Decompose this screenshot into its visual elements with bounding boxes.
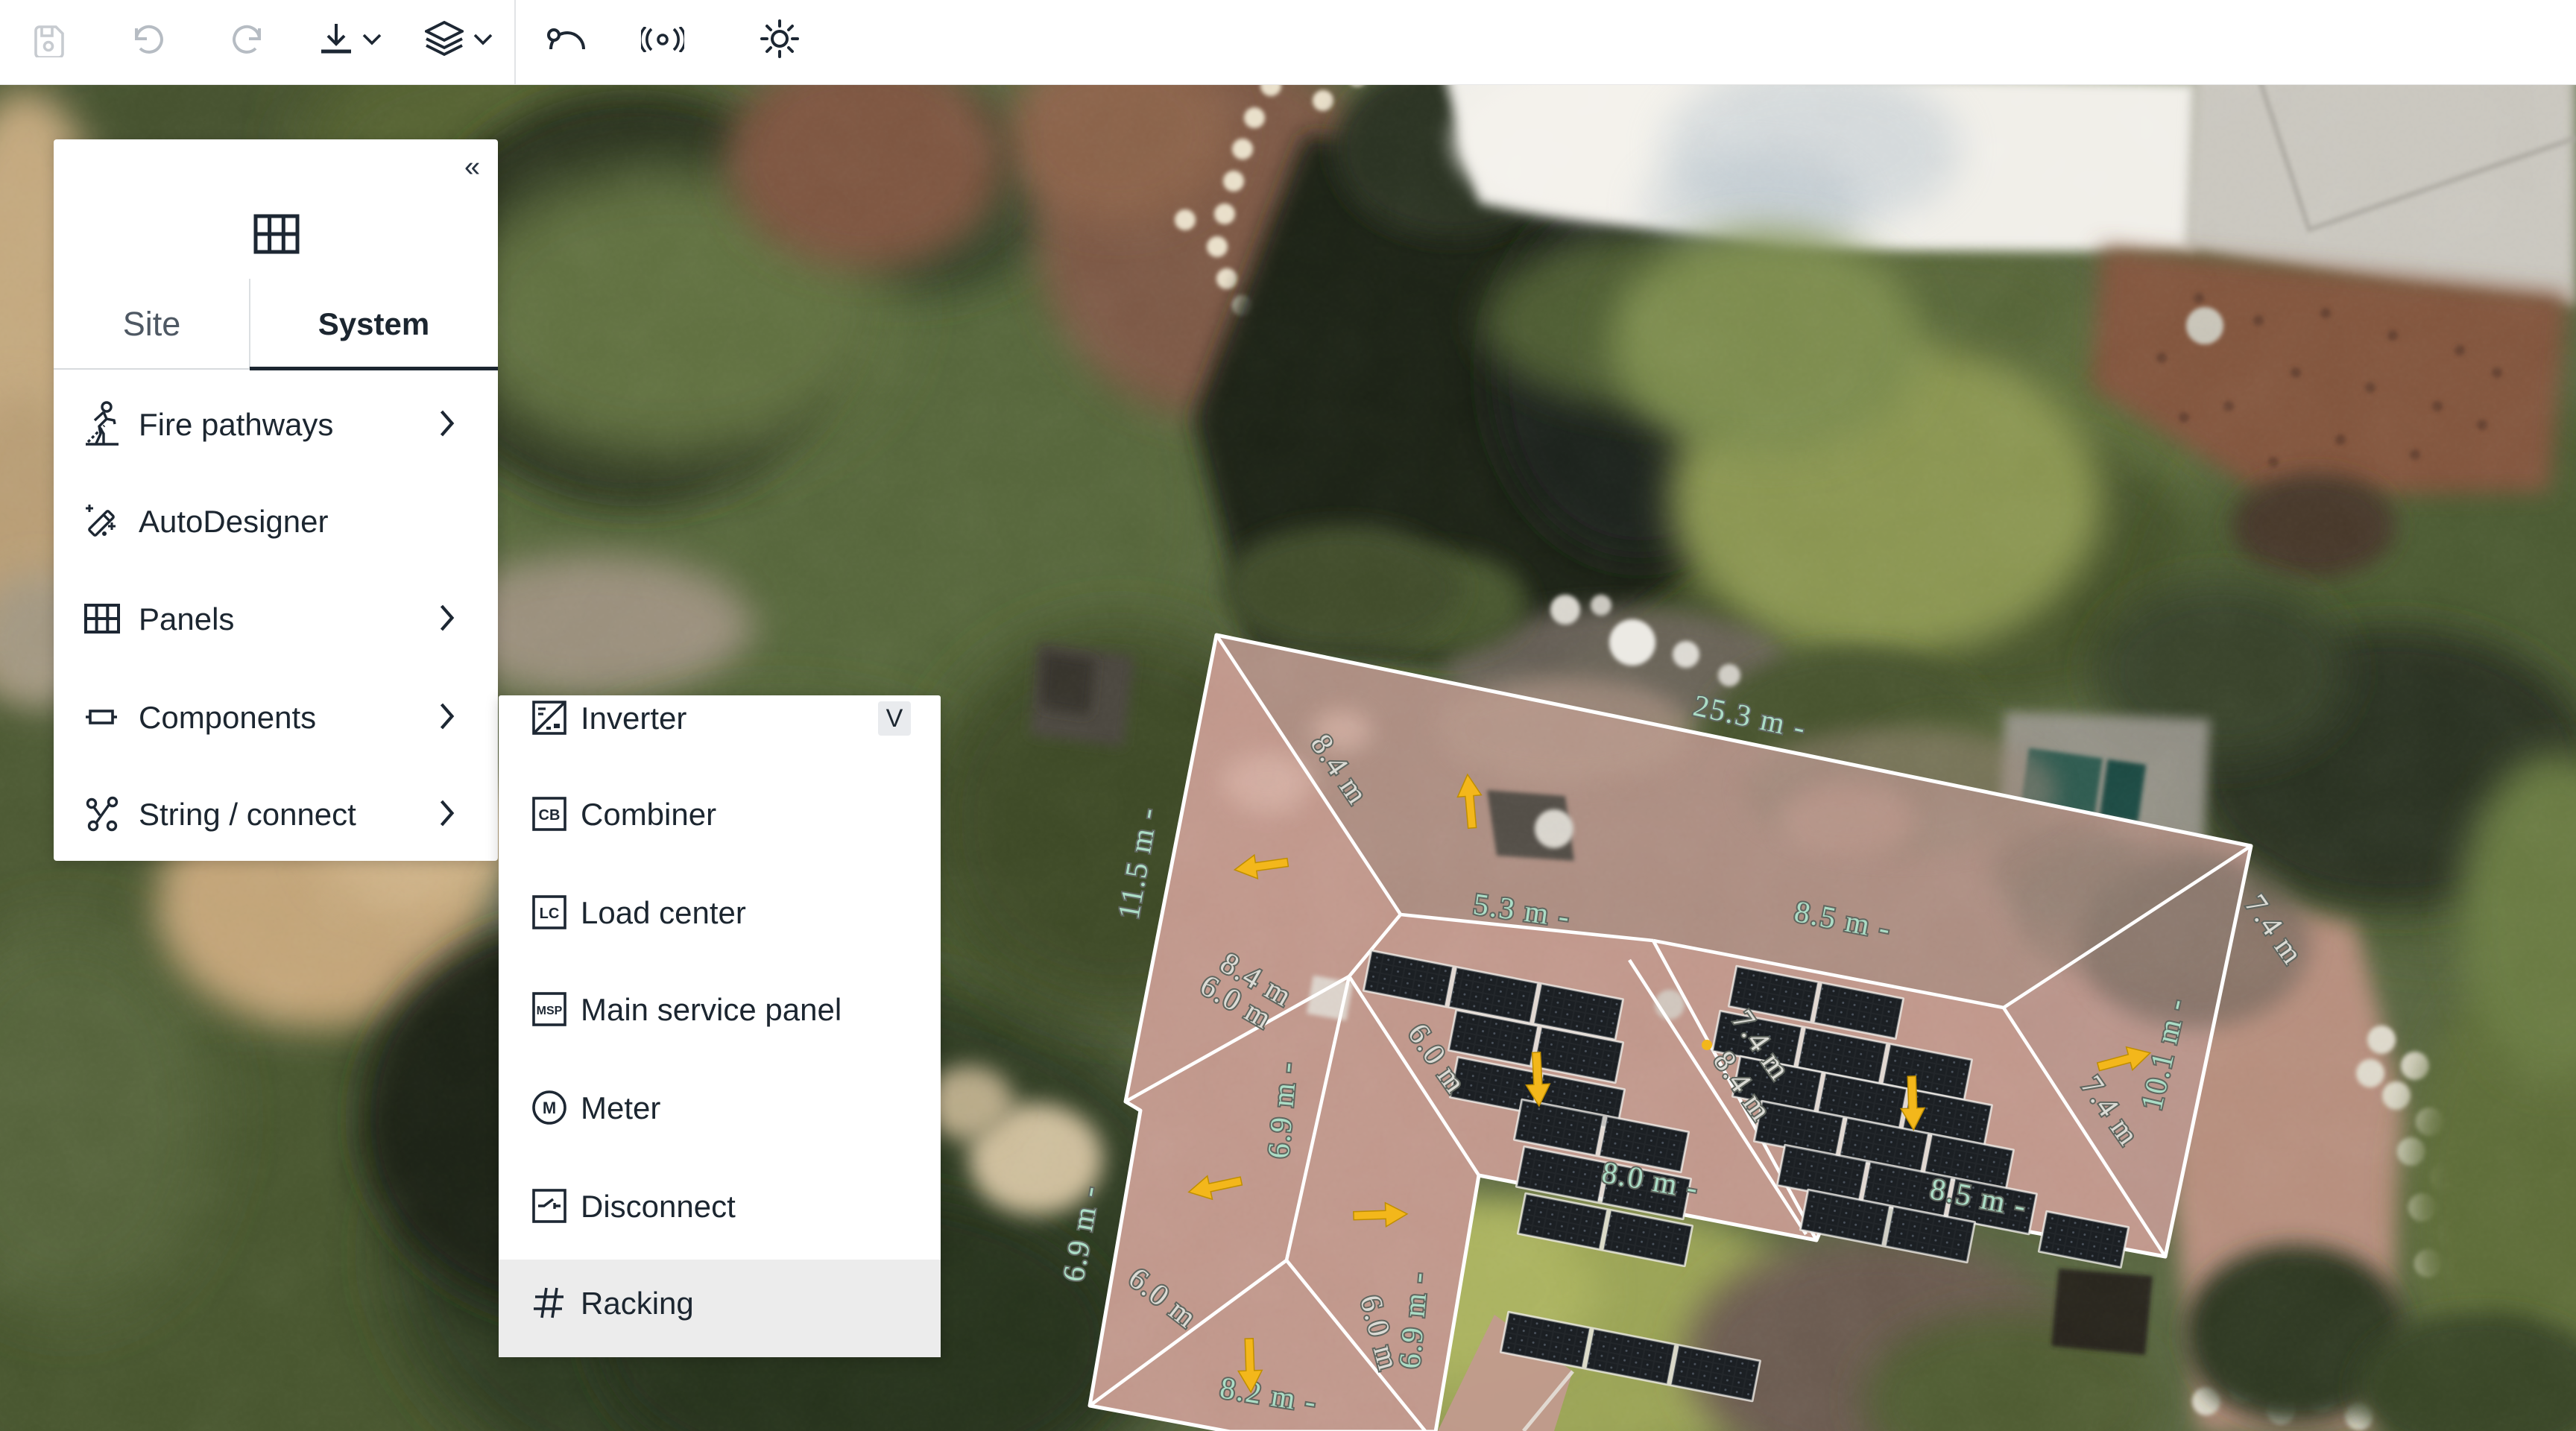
svg-text:LC: LC — [540, 906, 560, 922]
svg-text:MSP: MSP — [537, 1005, 563, 1017]
svg-text:CB: CB — [539, 807, 561, 824]
svg-text:M: M — [543, 1099, 556, 1117]
